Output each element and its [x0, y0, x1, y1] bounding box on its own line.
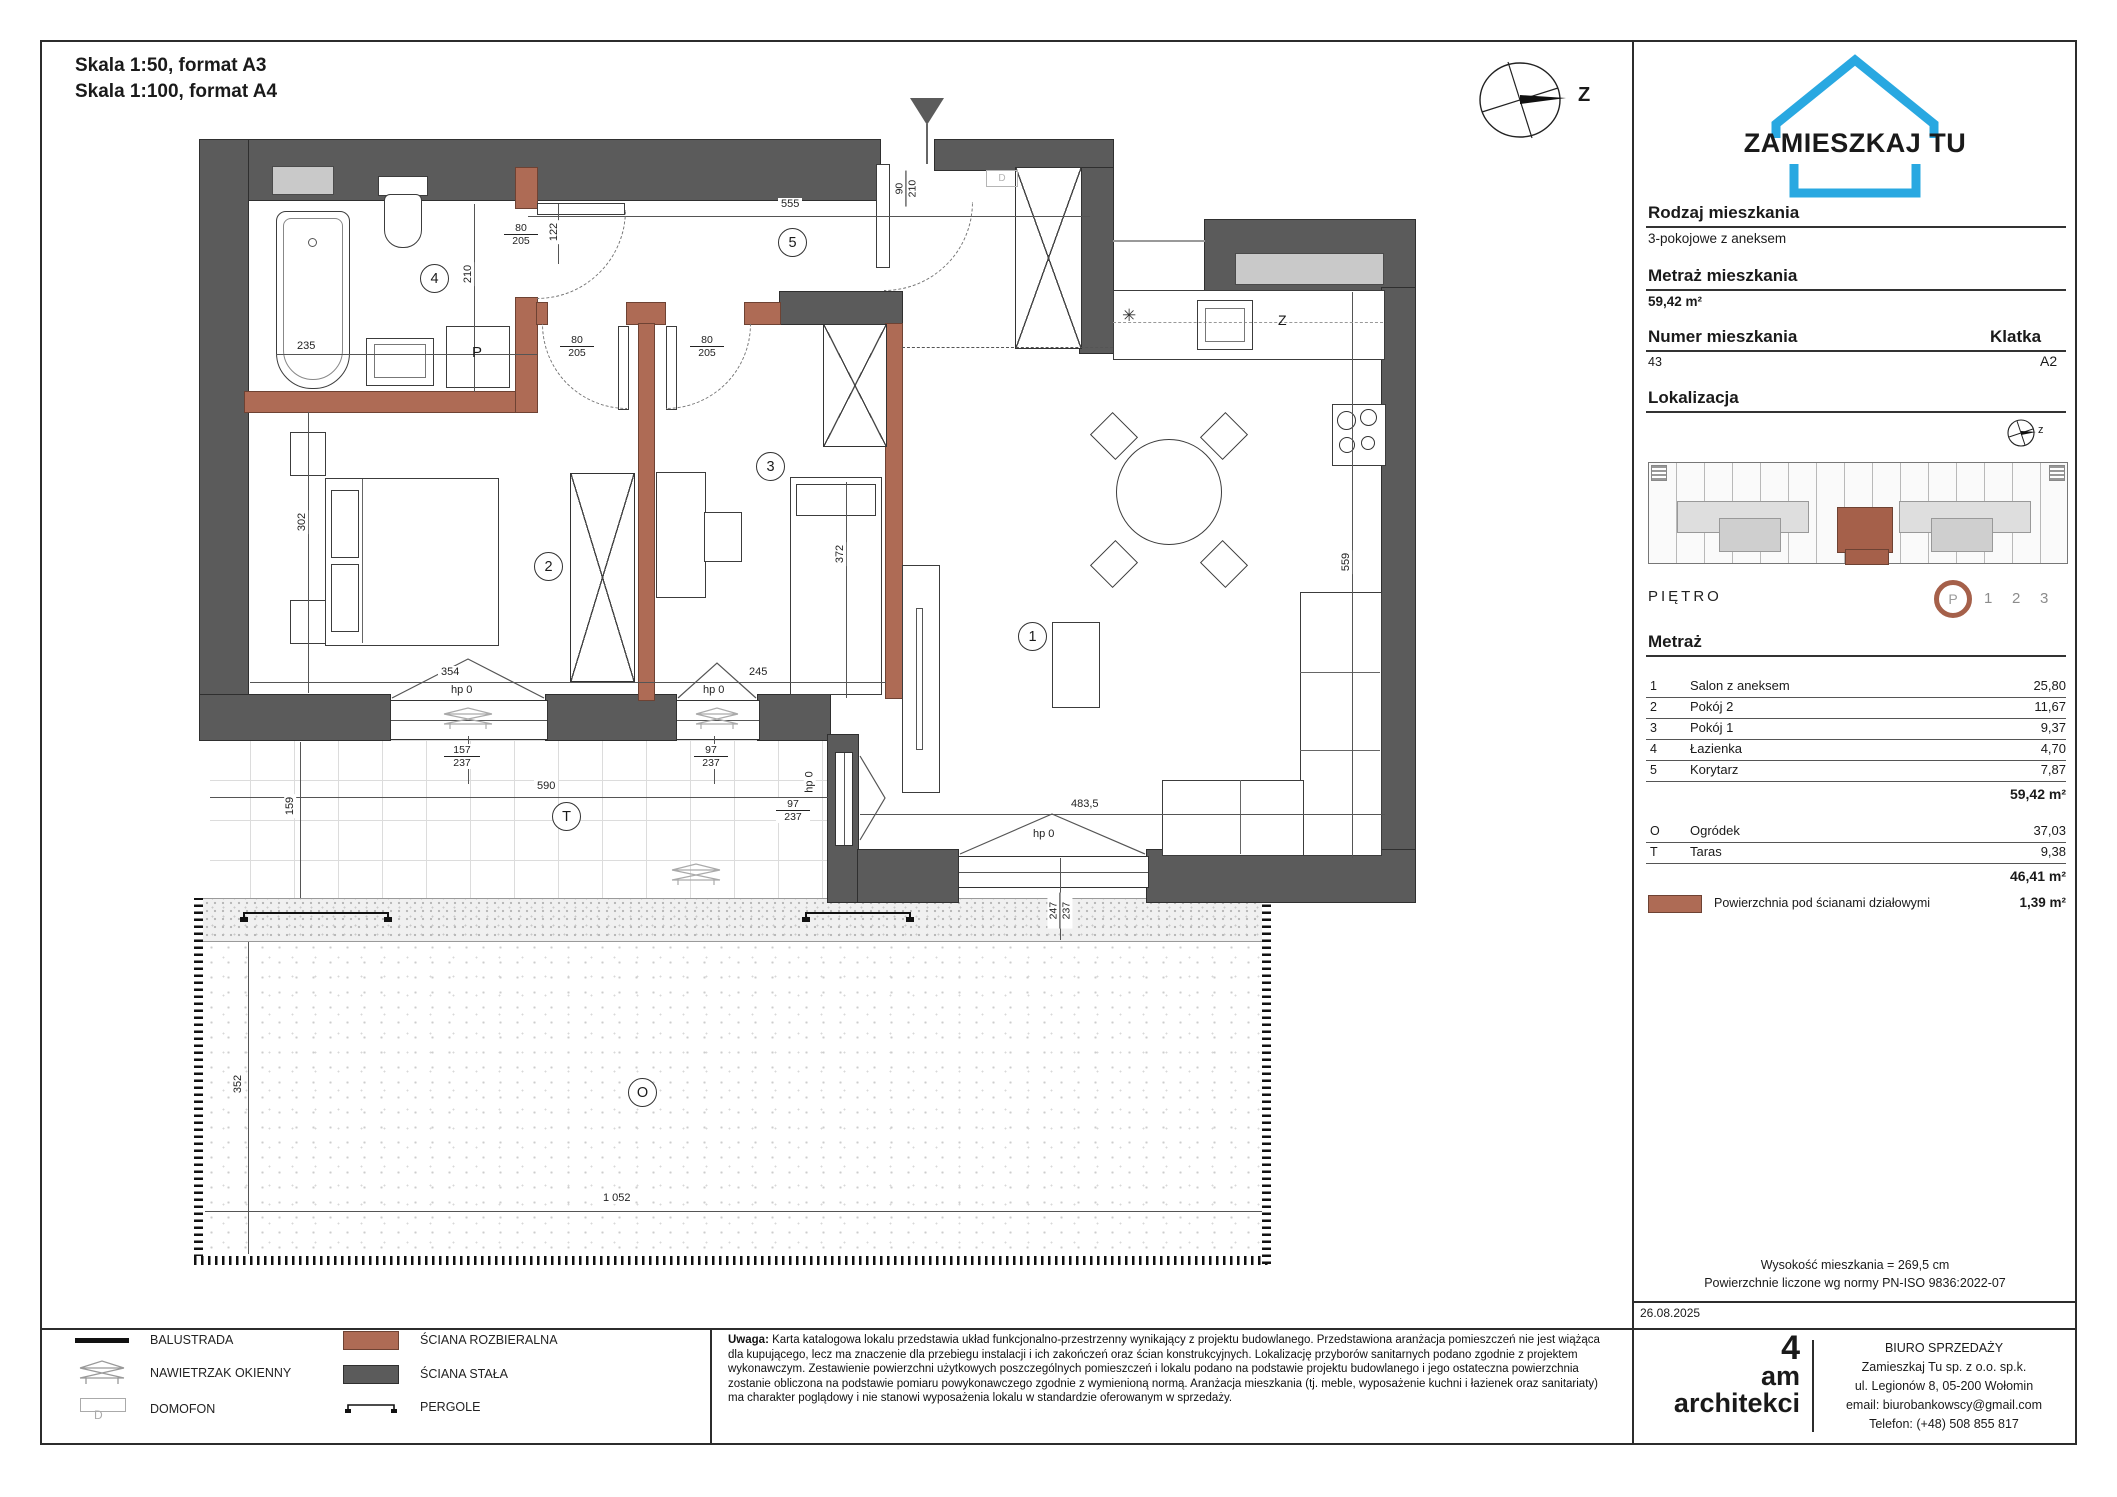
legend-label: ŚCIANA STAŁA — [420, 1367, 508, 1381]
rule — [1646, 655, 2066, 657]
table-row-no: T — [1650, 845, 1658, 859]
dim-window-side: 97237 — [776, 798, 810, 823]
dim-bedroom-door: 80205 — [560, 334, 594, 359]
partition-value: 1,39 m² — [1966, 895, 2066, 910]
compass-small-icon — [2004, 416, 2040, 452]
table-row-no: 2 — [1650, 700, 1657, 714]
table-row-name: Ogródek — [1690, 823, 1740, 838]
frame-left — [40, 40, 42, 1445]
architect-logo-line2: am — [1648, 1363, 1800, 1389]
dim-room1-width: 245 — [746, 666, 770, 678]
table-row-area: 11,67 — [1946, 699, 2066, 714]
dim-salon-depth: 559 — [1340, 550, 1352, 574]
table-row-area: 9,38 — [1946, 844, 2066, 859]
chair — [1200, 540, 1248, 588]
table-row-no: 5 — [1650, 763, 1657, 777]
table-row-name: Taras — [1690, 844, 1722, 859]
table-row-area: 7,87 — [1946, 762, 2066, 777]
legend-label: BALUSTRADA — [150, 1333, 233, 1347]
wall-salon-bottom-right — [1147, 850, 1415, 902]
sales-office-block: BIURO SPRZEDAŻY Zamieszkaj Tu sp. z o.o.… — [1816, 1332, 2072, 1440]
site-plan-stair — [1651, 465, 1667, 481]
note-block: Uwaga: Karta katalogowa lokalu przedstaw… — [728, 1333, 1612, 1406]
site-plan-core — [1719, 518, 1781, 552]
pergola-legend-icon — [343, 1400, 399, 1414]
dining-table — [1116, 439, 1222, 545]
dim-line — [250, 682, 886, 683]
solid-wall-swatch — [343, 1365, 399, 1384]
dim-bedroom-depth: 302 — [296, 510, 308, 534]
note-text: Karta katalogowa lokalu przedstawia ukła… — [728, 1334, 1600, 1404]
floor-option-1: 1 — [1984, 590, 1992, 607]
table-outdoor-total: 46,41 m² — [1946, 868, 2066, 884]
height-note: Wysokość mieszkania = 269,5 cm — [1636, 1258, 2074, 1272]
dim-line — [474, 204, 475, 392]
dim-window-bedroom: 157237 — [444, 744, 480, 769]
divider-legend-note — [710, 1328, 712, 1445]
dim-window-room1: 97237 — [694, 744, 728, 769]
table-row-name: Łazienka — [1690, 741, 1742, 756]
partition-room2-room3 — [639, 324, 654, 700]
numer-heading: Numer mieszkania — [1648, 327, 1797, 347]
vent-symbol: ✳ — [1122, 306, 1136, 326]
catalog-sheet: Skala 1:50, format A3 Skala 1:100, forma… — [0, 0, 2117, 1497]
klatka-heading: Klatka — [1990, 327, 2041, 347]
table-row-name: Korytarz — [1690, 762, 1738, 777]
window-salon-balcony — [958, 856, 1149, 888]
metraz-table-heading: Metraż — [1648, 632, 1702, 652]
site-plan-unit-garden — [1845, 549, 1889, 565]
legend-label: ŚCIANA ROZBIERALNA — [420, 1333, 558, 1347]
dim-bath-door: 80205 — [504, 222, 538, 247]
office-email: email: biurobankowscy@gmail.com — [1816, 1396, 2072, 1415]
dim-room1-door: 80205 — [690, 334, 724, 359]
rule — [1646, 411, 2066, 413]
table-rule — [1646, 842, 2066, 843]
dim-salon-width: 483,5 — [1068, 798, 1102, 810]
entrance-door-swing — [884, 202, 973, 291]
wall-right — [1382, 288, 1415, 902]
legend-label: DOMOFON — [150, 1402, 215, 1416]
partition-bath-side — [516, 298, 537, 412]
floor-current: P — [1948, 591, 1957, 607]
dim-sill-zero: hp 0 — [448, 684, 475, 696]
dim-garden-depth: 352 — [232, 1072, 244, 1096]
compass-label: Z — [1578, 84, 1590, 107]
legend-label: NAWIETRZAK OKIENNY — [150, 1366, 291, 1380]
wall-bottom-a — [200, 695, 390, 740]
dim-terrace-width: 590 — [534, 780, 558, 792]
norm-note: Powierzchnie liczone wg normy PN-ISO 983… — [1636, 1276, 2074, 1290]
table-row-no: O — [1650, 824, 1660, 838]
rule — [1646, 289, 2066, 291]
dim-line — [300, 742, 301, 898]
dim-line — [210, 797, 828, 798]
window-vent-icon — [692, 706, 742, 732]
pergola-icon — [238, 908, 394, 922]
sofa-cushion-line — [1240, 780, 1241, 854]
window-salon-side — [835, 752, 853, 846]
office-title: BIURO SPRZEDAŻY — [1816, 1339, 2072, 1358]
dim-balcony: 247237 — [1047, 893, 1072, 929]
table-row-area: 37,03 — [1946, 823, 2066, 838]
wall-bottom-c — [758, 695, 830, 740]
dim-bath-width: 235 — [294, 340, 318, 352]
terrace-area — [210, 740, 828, 898]
partition-bath-jamb — [516, 168, 537, 208]
compass-icon — [1470, 50, 1574, 154]
hob-burner — [1361, 436, 1375, 450]
scale-note-1: Skala 1:50, format A3 — [75, 55, 267, 77]
garden-area — [203, 940, 1262, 1256]
room-label-bathroom: 4 — [420, 264, 449, 293]
floor-option-3: 3 — [2040, 590, 2048, 607]
dim-room1-bed: 372 — [834, 542, 846, 566]
hob-burner — [1360, 409, 1377, 426]
note-label: Uwaga: — [728, 1334, 769, 1346]
dim-bath-door-offset: 122 — [548, 220, 560, 244]
dim-sill-zero: hp 0 — [804, 768, 816, 795]
toilet-tank — [378, 176, 428, 196]
kitchen-cabinet-line — [1113, 322, 1383, 323]
dim-line — [1352, 292, 1353, 858]
table-rule — [1646, 781, 2066, 782]
frame-top — [40, 40, 2077, 42]
removable-wall-swatch — [343, 1331, 399, 1350]
sofa-cushion-line — [1300, 750, 1380, 751]
wardrobe-room1 — [823, 324, 887, 447]
window-kitchen — [1235, 253, 1384, 285]
room-label-room1: 3 — [756, 452, 785, 481]
office-divider — [1812, 1340, 1814, 1432]
partition-label: Powierzchnia pod ścianami działowymi — [1714, 896, 1930, 910]
table-row-no: 4 — [1650, 742, 1657, 756]
pillow — [796, 484, 876, 516]
architect-logo: 4 am architekci — [1648, 1333, 1800, 1417]
intercom-legend-letter: D — [94, 1408, 103, 1422]
entrance-stem — [926, 124, 928, 164]
partition-hall-mid — [627, 303, 665, 324]
partition-hall-stub — [537, 303, 547, 324]
area-label-garden: O — [628, 1078, 657, 1107]
floor-current-ring: P — [1934, 580, 1972, 618]
chair — [1090, 412, 1138, 460]
bathtub-drain — [308, 238, 317, 247]
window-vent-icon — [668, 862, 724, 888]
rodzaj-value: 3-pokojowe z aneksem — [1648, 231, 1786, 246]
divider-sidebar — [1632, 40, 1634, 1445]
window-vent-icon — [440, 706, 496, 732]
table-rule — [1646, 697, 2066, 698]
frame-bottom — [40, 1443, 2077, 1445]
room-label-salon: 1 — [1018, 622, 1047, 651]
dim-entry-door: 90210 — [893, 171, 918, 207]
lokalizacja-heading: Lokalizacja — [1648, 388, 1739, 408]
intercom-chip: D — [986, 170, 1018, 187]
floor-option-2: 2 — [2012, 590, 2020, 607]
table-row-name: Pokój 1 — [1690, 720, 1733, 735]
wall-top-right — [935, 140, 1113, 170]
dim-line — [248, 942, 249, 1254]
dim-hall-width: 555 — [778, 198, 802, 210]
hob-burner — [1337, 411, 1356, 430]
tv-panel — [916, 608, 923, 750]
toilet-bowl — [384, 194, 422, 248]
desk-chair — [704, 512, 742, 562]
architect-logo-line1: 4 — [1648, 1333, 1800, 1363]
sofa-chaise — [1162, 780, 1304, 856]
sidebar-bottom-rule — [1632, 1301, 2077, 1303]
site-plan — [1648, 462, 2068, 564]
dim-bath-depth: 210 — [462, 262, 474, 286]
pergola-icon — [800, 908, 916, 922]
klatka-value: A2 — [2040, 353, 2057, 369]
dim-bedroom-width: 354 — [438, 666, 462, 678]
table-row-no: 3 — [1650, 721, 1657, 735]
intercom-legend-icon — [80, 1398, 126, 1412]
chair — [1090, 540, 1138, 588]
partition-room3-salon — [886, 324, 902, 698]
dim-terrace-depth: 159 — [284, 794, 296, 818]
window-swing — [858, 754, 888, 842]
architect-logo-line3: architekci — [1648, 1389, 1800, 1417]
sofa-main — [1300, 592, 1382, 856]
wall-left — [200, 140, 248, 740]
rule — [1646, 350, 2066, 352]
balustrade-left — [194, 898, 203, 1264]
brand-logo-icon — [1764, 50, 1946, 200]
dim-garden-width: 1 052 — [600, 1192, 634, 1204]
partition-hall-right — [745, 303, 780, 324]
pillow — [331, 490, 359, 558]
brand-logo-text: ZAMIESZKAJ TU — [1730, 128, 1980, 159]
washbasin-inner — [374, 344, 426, 378]
table-row-no: 1 — [1650, 679, 1657, 693]
table-rule — [1646, 863, 2066, 864]
site-plan-core — [1931, 518, 1993, 552]
room-label-hall: 5 — [778, 228, 807, 257]
metraz-value: 59,42 m² — [1648, 294, 1702, 309]
glazing-line — [1113, 240, 1205, 242]
legend-balustrade-icon — [75, 1338, 129, 1343]
scale-note-2: Skala 1:100, format A4 — [75, 81, 277, 103]
wall-bottom-b — [546, 695, 676, 740]
table-rule — [1646, 760, 2066, 761]
entrance-arrow-icon — [910, 98, 944, 125]
wall-salon-bottom-left — [858, 850, 958, 902]
balustrade-right — [1262, 902, 1271, 1264]
desk — [656, 472, 706, 598]
wall-step — [1080, 168, 1113, 353]
dishwasher-label: Z — [1278, 312, 1287, 328]
room-label-bedroom: 2 — [534, 552, 563, 581]
office-company: Zamieszkaj Tu sp. z o.o. sp.k. — [1816, 1358, 2072, 1377]
table-row-area: 9,37 — [1946, 720, 2066, 735]
area-label-terrace: T — [552, 802, 581, 831]
partition-bath-bottom — [245, 392, 537, 412]
chair — [1200, 412, 1248, 460]
rule — [1646, 226, 2066, 228]
bed-line — [362, 479, 363, 643]
table-rule — [1646, 718, 2066, 719]
legend-label: PERGOLE — [420, 1400, 480, 1414]
sofa-cushion-line — [1300, 672, 1380, 673]
pillow — [331, 564, 359, 632]
metraz-heading: Metraż mieszkania — [1648, 266, 1797, 286]
dim-line — [308, 412, 309, 693]
date: 26.08.2025 — [1640, 1306, 1700, 1320]
table-row-name: Pokój 2 — [1690, 699, 1733, 714]
table-row-area: 25,80 — [1946, 678, 2066, 693]
office-address: ul. Legionów 8, 05-200 Wołomin — [1816, 1377, 2072, 1396]
wardrobe-hall — [1015, 167, 1082, 349]
table-total: 59,42 m² — [1946, 786, 2066, 802]
numer-value: 43 — [1648, 355, 1662, 369]
dim-line — [205, 1211, 1262, 1212]
dim-sill-zero: hp 0 — [700, 684, 727, 696]
rodzaj-heading: Rodzaj mieszkania — [1648, 203, 1799, 223]
table-row-area: 4,70 — [1946, 741, 2066, 756]
washing-machine-label: P — [446, 344, 508, 361]
compass-small-label: z — [2038, 424, 2044, 436]
site-plan-unit-highlight — [1837, 507, 1893, 553]
wardrobe-bedroom — [570, 473, 635, 682]
balustrade-bottom — [194, 1256, 1271, 1265]
coffee-table — [1052, 622, 1100, 708]
kitchen-sink-inner — [1205, 308, 1245, 342]
site-plan-stair — [2049, 465, 2065, 481]
frame-right — [2075, 40, 2077, 1445]
pietro-label: PIĘTRO — [1648, 588, 1722, 605]
divider-footer — [40, 1328, 2077, 1330]
window-vent-legend-icon — [76, 1358, 128, 1388]
dim-line — [846, 482, 847, 698]
table-row-name: Salon z aneksem — [1690, 678, 1790, 693]
dim-sill-zero: hp 0 — [1030, 828, 1057, 840]
office-phone: Telefon: (+48) 508 855 817 — [1816, 1415, 2072, 1434]
partition-swatch — [1648, 895, 1702, 913]
wall-room1-top — [780, 292, 902, 324]
zone-boundary — [902, 347, 1113, 348]
table-rule — [1646, 739, 2066, 740]
window-bathroom — [272, 166, 334, 195]
